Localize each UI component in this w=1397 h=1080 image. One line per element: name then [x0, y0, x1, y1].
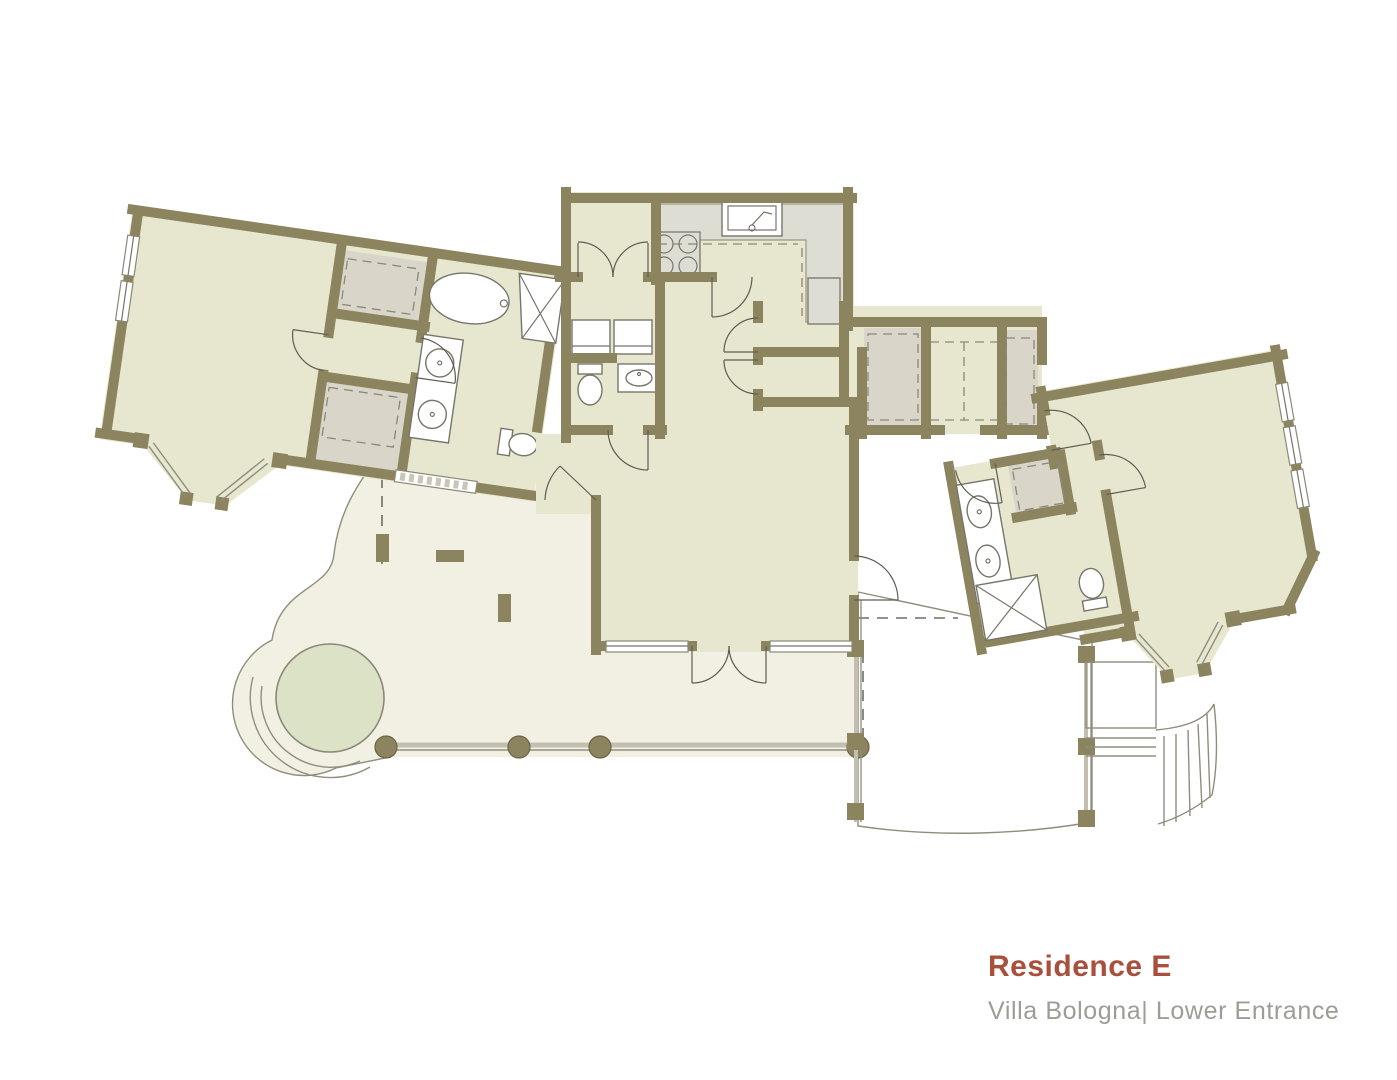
closet-floor: [311, 380, 410, 472]
corridor-floor: [536, 434, 598, 514]
walkin-closet-floor: [864, 328, 922, 426]
railing-post: [1078, 810, 1095, 827]
floor-plan-drawing: [0, 0, 1397, 1080]
washer-icon: [572, 320, 610, 354]
powder-sink-icon: [618, 364, 660, 392]
floor-plan-page: Residence E Villa Bologna| Lower Entranc…: [0, 0, 1397, 1080]
railing-post: [1078, 646, 1095, 663]
railing-post: [508, 736, 530, 758]
railing-post: [847, 803, 864, 820]
deck-post: [436, 550, 464, 562]
toilet-icon: [578, 364, 602, 405]
kitchen-sink-icon: [722, 200, 782, 236]
railing-post: [847, 733, 864, 750]
stairs: [1086, 662, 1216, 826]
deck-post: [376, 534, 389, 562]
dryer-icon: [614, 320, 652, 354]
residence-subtitle: Villa Bologna| Lower Entrance: [988, 997, 1339, 1026]
residence-title: Residence E: [988, 950, 1172, 984]
fridge-icon: [808, 278, 840, 324]
railing-post: [375, 736, 397, 758]
deck-post: [498, 594, 511, 622]
spa-icon: [276, 644, 384, 752]
railing-post: [589, 736, 611, 758]
